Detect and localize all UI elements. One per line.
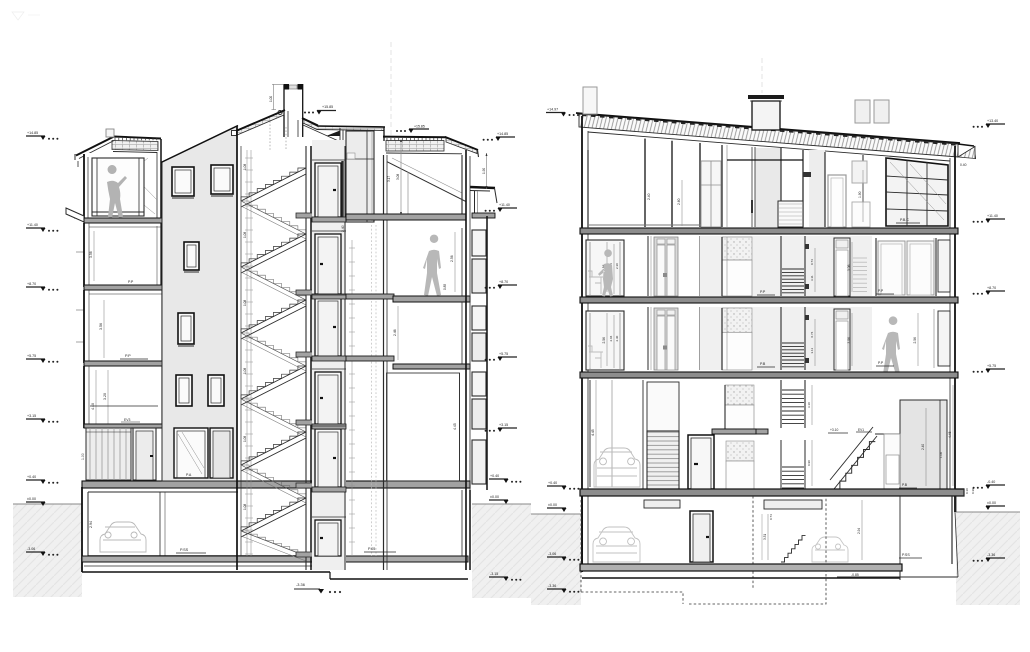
svg-text:2.56: 2.56 — [602, 337, 606, 344]
svg-text:P.SS: P.SS — [902, 553, 910, 557]
svg-text:-0.85: -0.85 — [851, 573, 859, 577]
svg-text:1.08: 1.08 — [243, 368, 247, 374]
svg-text:2.94: 2.94 — [857, 528, 861, 534]
svg-text:2.40: 2.40 — [921, 444, 925, 450]
svg-text:0.40: 0.40 — [960, 163, 967, 167]
svg-text:4.45: 4.45 — [453, 423, 457, 430]
svg-text:P.A: P.A — [186, 473, 192, 477]
svg-text:1.08: 1.08 — [243, 300, 247, 306]
svg-text:EV3: EV3 — [124, 418, 131, 422]
svg-text:1.08: 1.08 — [243, 232, 247, 238]
svg-text:P.P: P.P — [125, 354, 131, 358]
svg-text:3.10: 3.10 — [807, 402, 811, 408]
svg-text:3.56: 3.56 — [99, 323, 103, 330]
svg-text:+5.75: +5.75 — [499, 352, 508, 356]
svg-text:+14.85: +14.85 — [27, 131, 38, 135]
svg-text:-3.15: -3.15 — [490, 572, 498, 576]
svg-text:+0.40: +0.40 — [490, 474, 499, 478]
svg-text:1.00: 1.00 — [269, 96, 273, 102]
svg-text:P.05: P.05 — [368, 547, 375, 551]
svg-text:P.P: P.P — [760, 290, 766, 294]
svg-text:±0.00: ±0.00 — [548, 503, 557, 507]
svg-text:+0.40: +0.40 — [27, 475, 36, 479]
svg-text:3.11: 3.11 — [810, 348, 814, 354]
svg-text:P.B.C: P.B.C — [900, 218, 909, 222]
svg-text:3.11: 3.11 — [810, 275, 814, 281]
svg-text:1.08: 1.08 — [243, 504, 247, 510]
svg-text:2.04: 2.04 — [609, 335, 613, 341]
svg-text:+15.85: +15.85 — [414, 125, 425, 129]
svg-text:+11.40: +11.40 — [27, 223, 38, 227]
svg-text:4.45: 4.45 — [948, 431, 952, 438]
svg-text:+5.75: +5.75 — [27, 354, 36, 358]
svg-text:1.06: 1.06 — [939, 452, 943, 458]
svg-text:±0.00: ±0.00 — [987, 501, 996, 505]
svg-text:+5.75: +5.75 — [987, 364, 996, 368]
svg-text:+14.97: +14.97 — [547, 108, 558, 112]
svg-text:-3.36: -3.36 — [296, 582, 305, 587]
svg-text:3.06: 3.06 — [847, 337, 851, 344]
svg-text:0.74: 0.74 — [769, 514, 773, 520]
svg-text:-3.06: -3.06 — [548, 552, 556, 556]
svg-text:P.P: P.P — [878, 289, 884, 293]
svg-text:-3.36: -3.36 — [548, 584, 556, 588]
svg-text:P.P: P.P — [128, 280, 134, 284]
svg-text:4.45: 4.45 — [591, 429, 595, 436]
svg-text:0.74: 0.74 — [810, 331, 814, 337]
svg-text:3.08: 3.08 — [396, 174, 400, 180]
svg-text:0.90: 0.90 — [807, 460, 811, 466]
svg-text:2.40: 2.40 — [341, 225, 345, 232]
svg-text:P.B: P.B — [902, 483, 908, 487]
svg-text:±0.00: ±0.00 — [490, 495, 499, 499]
svg-text:2.46: 2.46 — [393, 329, 397, 336]
svg-text:1.90: 1.90 — [482, 168, 486, 174]
svg-text:0.74: 0.74 — [810, 259, 814, 265]
svg-text:+0.40: +0.40 — [548, 481, 557, 485]
svg-text:3.20: 3.20 — [103, 393, 107, 400]
svg-text:3.31: 3.31 — [763, 534, 767, 540]
svg-text:2.56: 2.56 — [450, 255, 454, 262]
svg-text:P.SS: P.SS — [180, 548, 189, 552]
svg-text:+11.40: +11.40 — [987, 214, 998, 218]
svg-text:2.56: 2.56 — [913, 337, 917, 344]
svg-text:+8.70: +8.70 — [987, 286, 996, 290]
svg-text:2.94: 2.94 — [89, 521, 93, 528]
svg-text:+11.40: +11.40 — [499, 203, 510, 207]
svg-text:EV1: EV1 — [858, 428, 864, 432]
svg-text:+15.85: +15.85 — [322, 105, 333, 109]
svg-text:±0.00: ±0.00 — [27, 497, 36, 501]
svg-text:+8.70: +8.70 — [499, 280, 508, 284]
svg-text:-0.40: -0.40 — [987, 480, 995, 484]
svg-text:3.06: 3.06 — [847, 264, 851, 271]
svg-text:1.90: 1.90 — [858, 191, 862, 198]
svg-text:+13.40: +13.40 — [987, 119, 998, 123]
svg-text:2.60: 2.60 — [677, 198, 681, 205]
svg-text:3.17: 3.17 — [387, 176, 391, 182]
svg-text:+14.85: +14.85 — [497, 132, 508, 136]
svg-text:+3.15: +3.15 — [27, 414, 36, 418]
svg-text:+8.70: +8.70 — [27, 282, 36, 286]
svg-text:-3.36: -3.36 — [987, 553, 995, 557]
svg-text:4.40: 4.40 — [91, 403, 95, 410]
svg-text:2.30: 2.30 — [615, 335, 619, 341]
svg-text:2.40: 2.40 — [647, 193, 651, 200]
svg-text:P.B: P.B — [760, 362, 766, 366]
svg-text:1.00: 1.00 — [81, 453, 85, 460]
svg-text:1.08: 1.08 — [243, 164, 247, 170]
svg-text:P.P: P.P — [878, 361, 884, 365]
svg-text:3.56: 3.56 — [89, 251, 93, 258]
svg-text:+3.10: +3.10 — [830, 428, 839, 432]
svg-text:2.30: 2.30 — [615, 263, 619, 269]
svg-text:+3.15: +3.15 — [499, 423, 508, 427]
svg-text:-3.06: -3.06 — [27, 547, 35, 551]
svg-text:0.30: 0.30 — [971, 488, 975, 494]
svg-text:0.85: 0.85 — [443, 284, 447, 290]
svg-text:0.10: 0.10 — [965, 488, 969, 494]
svg-text:1.08: 1.08 — [243, 436, 247, 442]
